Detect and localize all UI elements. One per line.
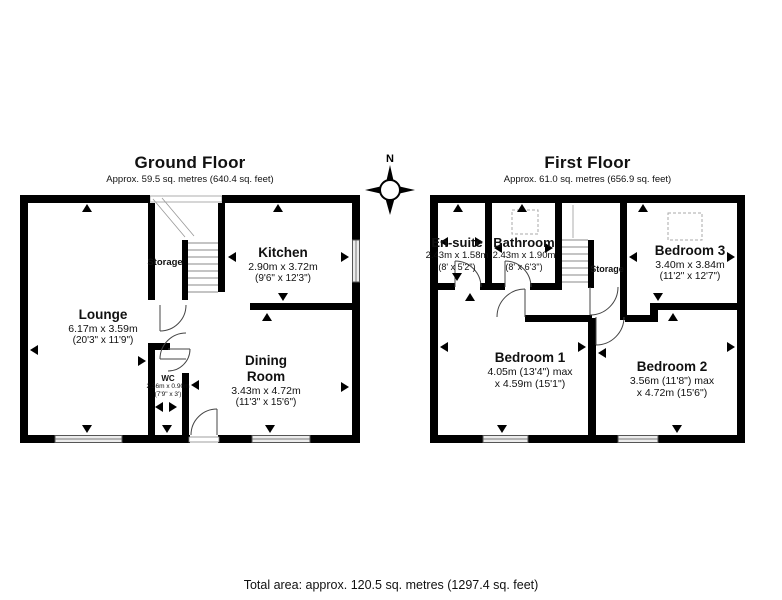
first-floor-plan: En-suite 2.43m x 1.58m (8' x 5'2") Bathr… (430, 195, 745, 443)
room-dim-bedroom-2-line2: x 4.72m (15'6") (612, 387, 732, 399)
room-name-wc: WC (139, 374, 197, 383)
room-dim-bedroom-3-imperial: (11'2" x 12'7") (630, 271, 750, 283)
room-label-bathroom: Bathroom 2.43m x 1.90m (8' x 6'3") (483, 235, 565, 272)
room-dim-bedroom-2-line1: 3.56m (11'8") max (612, 375, 732, 387)
compass-north-label: N (386, 153, 394, 165)
room-name-kitchen: Kitchen (213, 245, 353, 261)
room-name-bathroom: Bathroom (483, 235, 565, 250)
first-floor-title-block: First Floor Approx. 61.0 sq. metres (656… (430, 153, 745, 185)
ground-floor-title: Ground Floor (20, 153, 360, 173)
room-label-kitchen: Kitchen 2.90m x 3.72m (9'6" x 12'3") (213, 245, 353, 285)
room-label-bedroom-3: Bedroom 3 3.40m x 3.84m (11'2" x 12'7") (630, 243, 750, 283)
room-label-lounge: Lounge 6.17m x 3.59m (20'3" x 11'9") (33, 307, 173, 347)
first-floor-subtitle: Approx. 61.0 sq. metres (656.9 sq. feet) (430, 174, 745, 185)
room-name-dining-room: Dining Room (230, 353, 302, 385)
room-name-bedroom-2: Bedroom 2 (612, 359, 732, 375)
room-label-bedroom-1: Bedroom 1 4.05m (13'4") max x 4.59m (15'… (470, 350, 590, 391)
room-dim-lounge-metric: 6.17m x 3.59m (33, 323, 173, 335)
walls (430, 195, 745, 443)
room-dim-kitchen-metric: 2.90m x 3.72m (213, 261, 353, 273)
room-dim-dining-metric: 3.43m x 4.72m (205, 385, 327, 397)
room-dim-bathroom-metric: 2.43m x 1.90m (483, 250, 565, 261)
room-label-bedroom-2: Bedroom 2 3.56m (11'8") max x 4.72m (15'… (612, 359, 732, 400)
room-dim-wc-imperial: (7'9" x 3') (139, 391, 197, 398)
porch-recess (150, 196, 222, 237)
room-dim-kitchen-imperial: (9'6" x 12'3") (213, 273, 353, 285)
first-floor-drawing (430, 195, 745, 443)
room-dim-bedroom-1-line2: x 4.59m (15'1") (470, 378, 590, 390)
room-name-bedroom-3: Bedroom 3 (630, 243, 750, 259)
room-dim-lounge-imperial: (20'3" x 11'9") (33, 335, 173, 347)
room-dim-bedroom-3-metric: 3.40m x 3.84m (630, 259, 750, 271)
room-dim-wc-metric: 2.36m x 0.90m (139, 383, 197, 390)
storage-label-ground: Storage (134, 257, 196, 268)
room-name-bedroom-1: Bedroom 1 (470, 350, 590, 366)
room-label-dining-room: Dining Room 3.43m x 4.72m (11'3" x 15'6"… (205, 353, 327, 409)
compass-icon: N (362, 150, 418, 220)
first-floor-title: First Floor (430, 153, 745, 173)
total-area-text: Total area: approx. 120.5 sq. metres (12… (0, 578, 782, 592)
room-label-wc: WC 2.36m x 0.90m (7'9" x 3') (139, 374, 197, 398)
room-dim-bathroom-imperial: (8' x 6'3") (483, 262, 565, 273)
compass-star (365, 165, 415, 215)
room-dim-bedroom-1-line1: 4.05m (13'4") max (470, 366, 590, 378)
floorplan-page: Ground Floor Approx. 59.5 sq. metres (64… (0, 0, 782, 600)
compass-rose: N (362, 150, 418, 220)
storage-label-first: Storage (583, 264, 631, 274)
ground-floor-subtitle: Approx. 59.5 sq. metres (640.4 sq. feet) (20, 174, 360, 185)
ground-floor-plan: Lounge 6.17m x 3.59m (20'3" x 11'9") Kit… (20, 195, 360, 443)
room-name-lounge: Lounge (33, 307, 173, 323)
room-dim-dining-imperial: (11'3" x 15'6") (205, 397, 327, 409)
ground-floor-title-block: Ground Floor Approx. 59.5 sq. metres (64… (20, 153, 360, 185)
